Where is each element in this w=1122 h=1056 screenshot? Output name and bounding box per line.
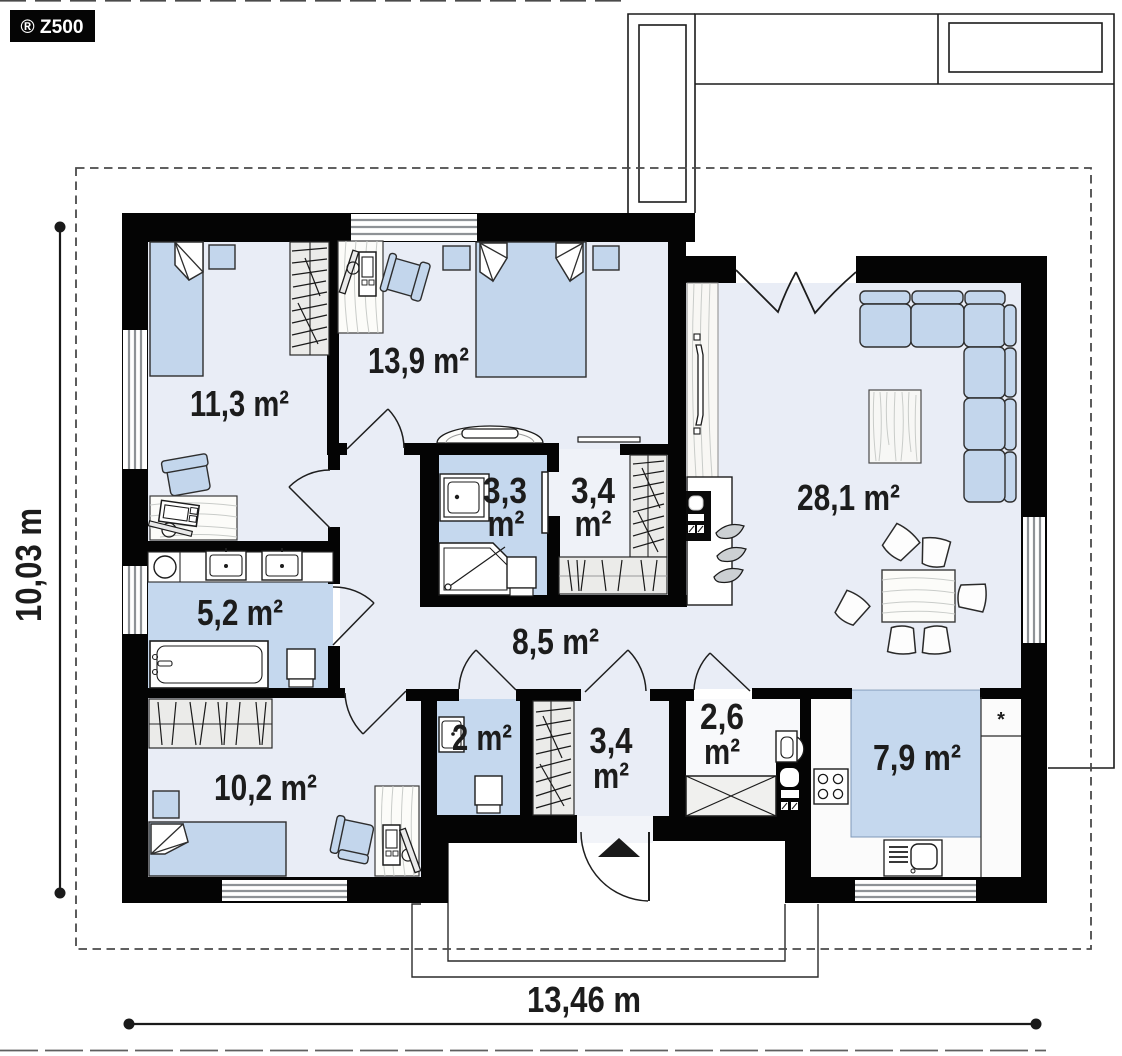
svg-text:13,46 m: 13,46 m (527, 979, 641, 1020)
svg-text:10,2 m²: 10,2 m² (214, 767, 317, 808)
svg-text:*: * (997, 709, 1005, 731)
svg-text:m²: m² (575, 503, 612, 544)
svg-text:13,9 m²: 13,9 m² (368, 340, 469, 381)
svg-text:7,9 m²: 7,9 m² (873, 737, 961, 778)
svg-text:8,5 m²: 8,5 m² (512, 621, 599, 662)
svg-text:® Z500: ® Z500 (21, 17, 84, 38)
svg-text:11,3 m²: 11,3 m² (190, 383, 289, 424)
svg-text:10,03 m: 10,03 m (8, 508, 49, 622)
svg-text:5,2 m²: 5,2 m² (197, 592, 283, 633)
svg-text:2 m²: 2 m² (452, 717, 512, 758)
svg-text:m²: m² (704, 731, 740, 772)
svg-text:m²: m² (593, 755, 629, 796)
svg-text:m²: m² (488, 503, 525, 544)
svg-text:28,1 m²: 28,1 m² (797, 477, 900, 518)
